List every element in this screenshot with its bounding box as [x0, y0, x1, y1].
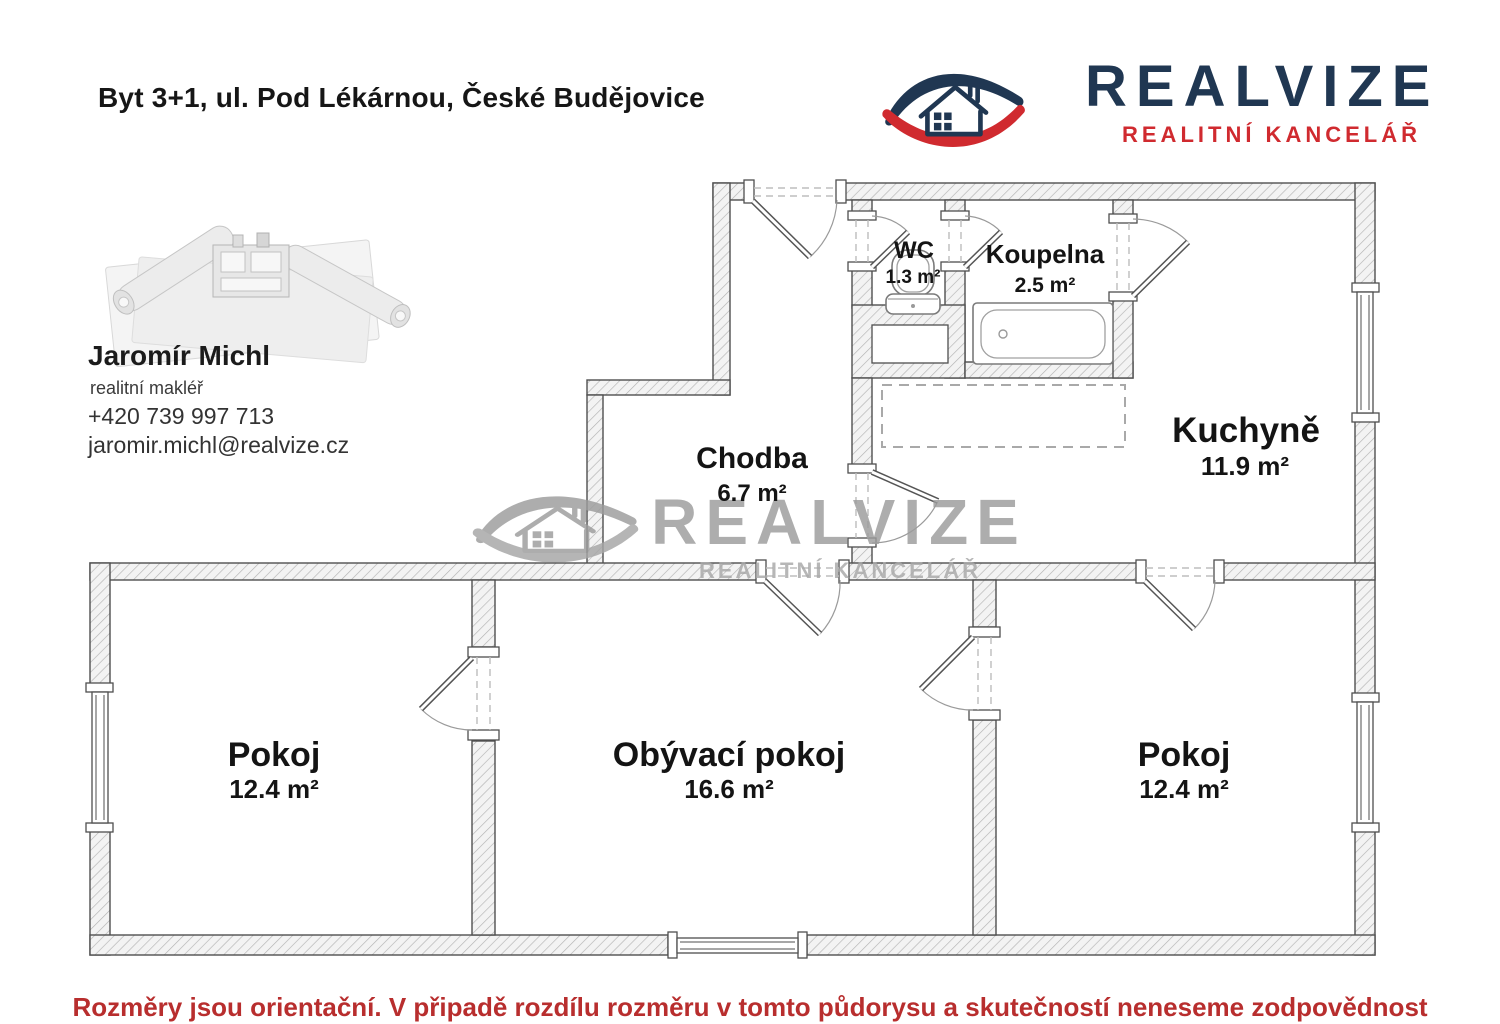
watermark-subtitle: REALITNÍ KANCELÁŘ: [699, 558, 981, 583]
door-kuchyne-top: [1109, 214, 1188, 301]
room-area-obyvaci: 16.6 m²: [684, 774, 774, 804]
room-label-chodba: Chodba: [696, 442, 808, 475]
window-obyvaci: [668, 932, 807, 958]
bathtub-fixture: [973, 303, 1113, 364]
agent-email: jaromir.michl@realvize.cz: [88, 432, 349, 459]
watermark-eye-icon: [473, 496, 639, 562]
logo-brand-text: REALVIZE: [1085, 58, 1440, 116]
floorplan-drawing: REALVIZE REALITNÍ KANCELÁŘ WC 1.3 m² Kou…: [0, 0, 1500, 1024]
door-pokoj-left: [421, 647, 499, 740]
room-label-pokoj-right: Pokoj: [1138, 736, 1231, 774]
room-label-koupelna: Koupelna: [986, 239, 1105, 269]
room-label-wc: WC: [894, 237, 934, 264]
room-label-kuchyne: Kuchyně: [1172, 411, 1320, 450]
room-label-pokoj-left: Pokoj: [228, 736, 321, 774]
logo-eye-icon: [882, 74, 1025, 147]
logo-subtitle-text: REALITNÍ KANCELÁŘ: [1122, 122, 1421, 148]
room-area-koupelna: 2.5 m²: [1015, 274, 1076, 297]
door-entrance: [744, 180, 846, 257]
window-pokoj-right: [1352, 693, 1379, 832]
watermark-brand: REALVIZE: [651, 486, 1027, 558]
room-area-wc: 1.3 m²: [886, 267, 941, 288]
room-area-pokoj-right: 12.4 m²: [1139, 774, 1229, 804]
agent-role: realitní makléř: [90, 378, 203, 399]
agent-name: Jaromír Michl: [88, 340, 270, 372]
kitchen-counter-outline: [882, 385, 1125, 447]
room-area-pokoj-left: 12.4 m²: [229, 774, 319, 804]
room-area-kuchyne: 11.9 m²: [1201, 451, 1290, 481]
window-pokoj-left: [86, 683, 113, 832]
door-obyvaci-pokoj: [921, 627, 1000, 720]
disclaimer-text: Rozměry jsou orientační. V připadě rozdí…: [0, 992, 1500, 1023]
room-label-obyvaci: Obývací pokoj: [613, 736, 845, 774]
page-title: Byt 3+1, ul. Pod Lékárnou, České Budějov…: [98, 82, 705, 114]
agent-phone: +420 739 997 713: [88, 403, 274, 430]
floorplan-page: REALVIZE REALITNÍ KANCELÁŘ WC 1.3 m² Kou…: [0, 0, 1500, 1024]
door-pokoj-right: [1136, 560, 1224, 629]
room-area-chodba: 6.7 m²: [717, 480, 786, 507]
window-kuchyne: [1352, 283, 1379, 422]
